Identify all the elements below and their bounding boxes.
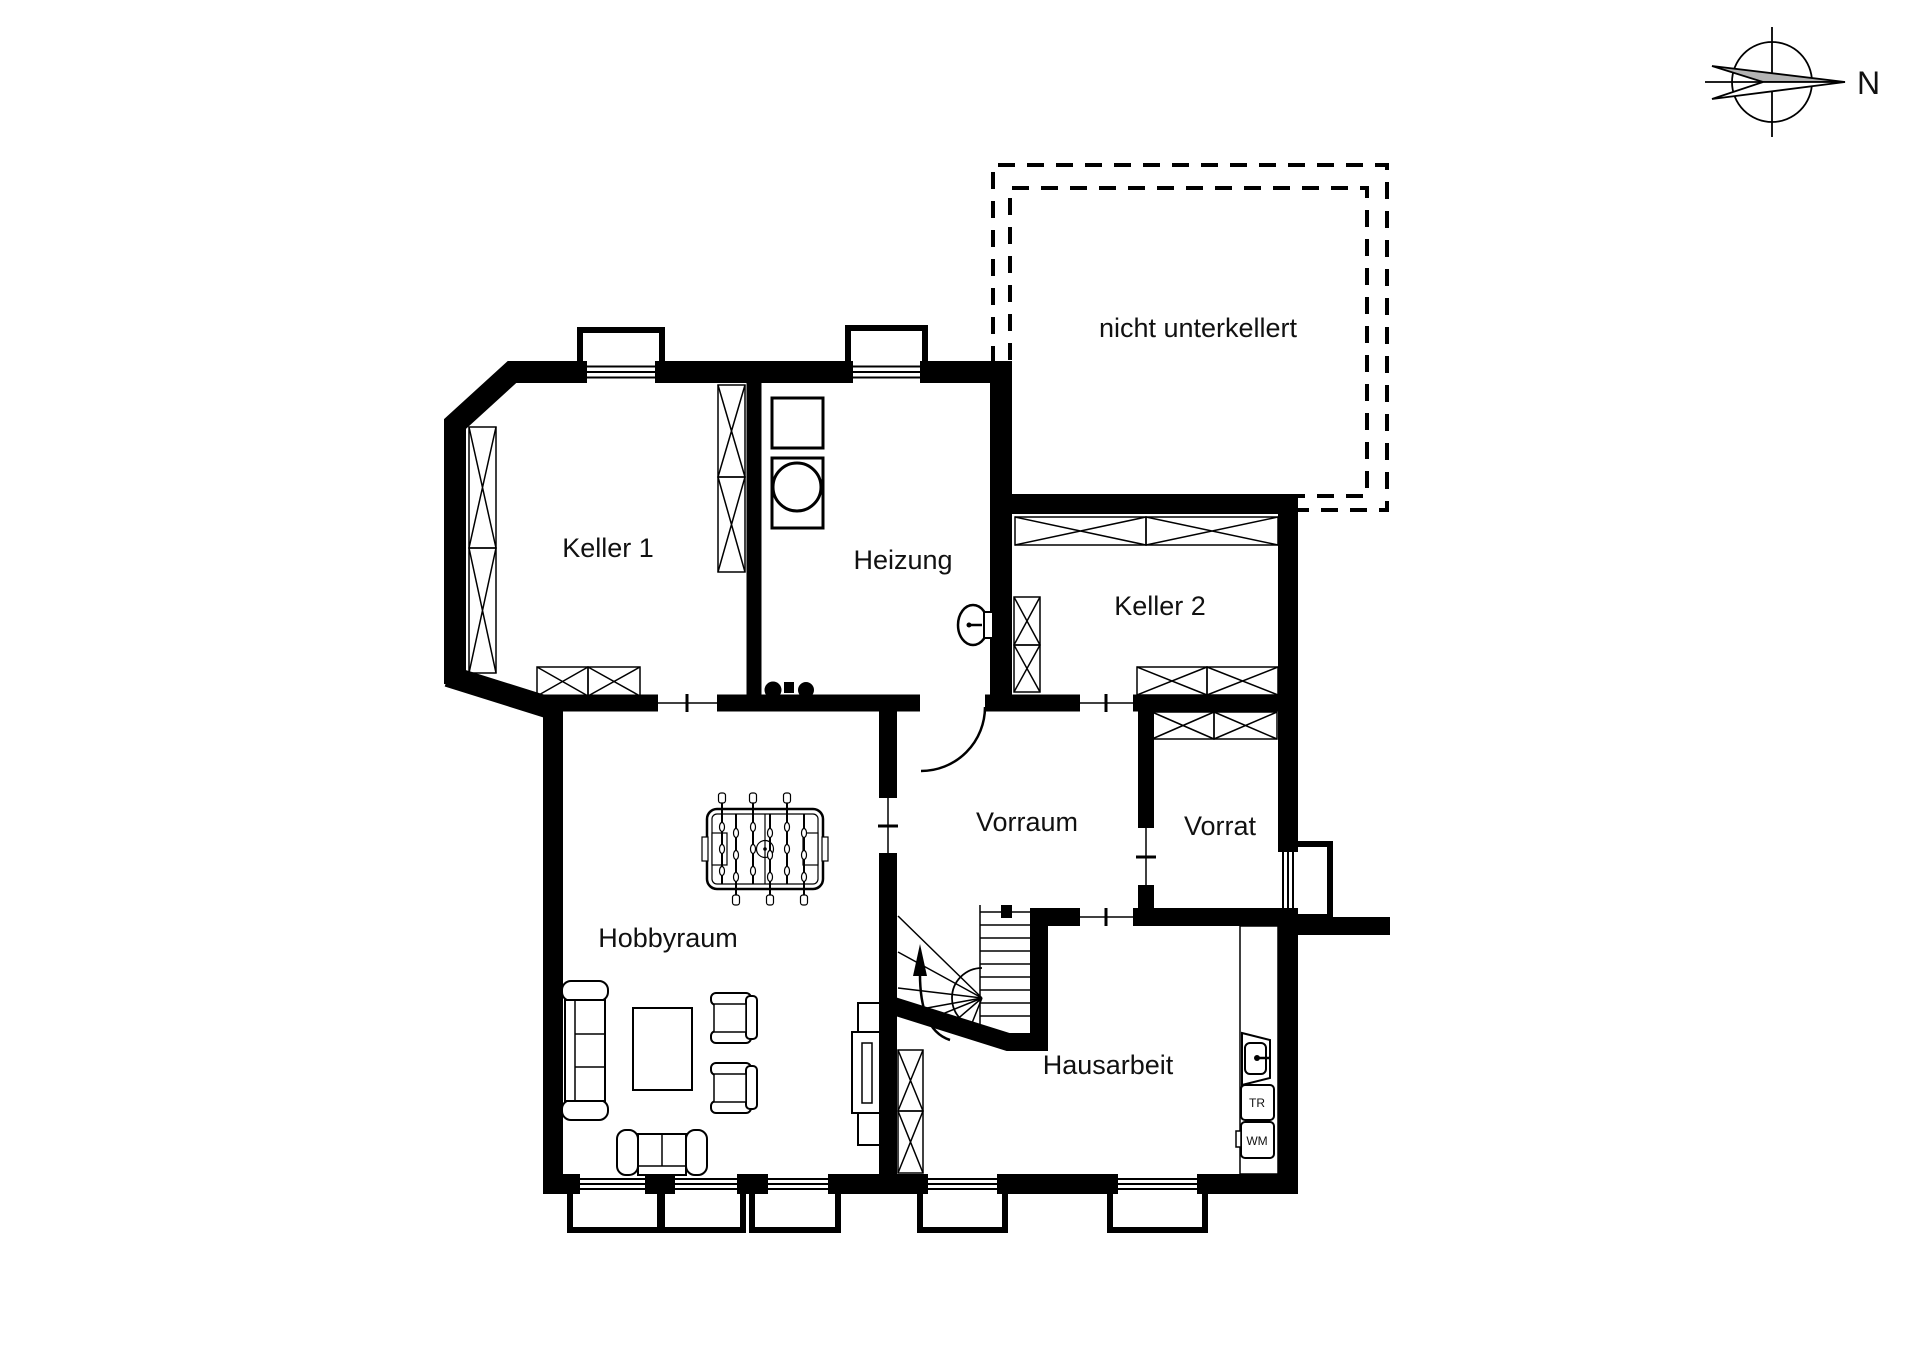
window-bottom-2 — [675, 1174, 737, 1194]
boiler-box — [772, 398, 823, 448]
well-keller1-top — [580, 330, 662, 366]
shelf-keller2-top — [1015, 517, 1278, 545]
armchair-1 — [711, 993, 757, 1043]
well-bottom-1 — [570, 1188, 660, 1230]
window-wells — [570, 328, 1330, 1230]
sink-icon — [1242, 1033, 1270, 1085]
well-bottom-3 — [752, 1188, 838, 1230]
shelf-keller1-right — [718, 385, 745, 572]
door-vorrat — [1136, 828, 1156, 885]
armchair-2 — [711, 1063, 757, 1113]
label-hobbyraum: Hobbyraum — [598, 923, 738, 953]
sideboard — [852, 1003, 880, 1145]
door-keller2 — [1080, 694, 1133, 712]
water-heater-icon — [958, 605, 993, 645]
door-hausarbeit — [1080, 908, 1133, 926]
label-nicht-unterkellert: nicht unterkellert — [1099, 313, 1298, 343]
door-keller1 — [658, 694, 717, 712]
label-dryer: TR — [1249, 1096, 1265, 1110]
door-hobbyraum — [878, 798, 898, 853]
window-bottom-4 — [928, 1174, 997, 1194]
sofa-three-seat — [562, 981, 608, 1120]
window-heizung-top — [853, 361, 920, 383]
well-bottom-2 — [662, 1188, 743, 1230]
north-label: N — [1857, 65, 1880, 101]
foosball-table — [702, 793, 828, 905]
shelf-vorrat-top — [1152, 712, 1277, 739]
sofa-two-seat — [617, 1130, 707, 1175]
shelf-keller2-bottom — [1137, 667, 1278, 695]
window-bottom-5 — [1118, 1174, 1197, 1194]
shelf-hausarbeit-left — [898, 1050, 923, 1173]
stair-post — [1001, 905, 1012, 918]
hobbyraum-furniture — [562, 793, 880, 1175]
coffee-table — [633, 1008, 692, 1090]
floor-plan-canvas: N Keller 1 Heizung Keller 2 nicht unterk… — [0, 0, 1920, 1357]
label-hausarbeit: Hausarbeit — [1043, 1050, 1174, 1080]
label-keller2: Keller 2 — [1114, 591, 1206, 621]
tank-circle — [773, 463, 821, 511]
washer-tab — [1236, 1131, 1241, 1147]
window-keller1-top — [587, 361, 655, 383]
well-bottom-4 — [920, 1188, 1005, 1230]
label-vorraum: Vorraum — [976, 807, 1078, 837]
window-bottom-3 — [768, 1174, 828, 1194]
shelf-keller1-left — [469, 427, 496, 673]
shelf-keller1-bottom — [537, 667, 640, 696]
door-heizung-swing — [921, 707, 985, 771]
compass-rose: N — [1705, 27, 1880, 137]
window-bottom-1 — [580, 1174, 645, 1194]
window-right — [1278, 852, 1298, 908]
shelf-corridor-vertical — [1014, 597, 1040, 692]
label-heizung: Heizung — [853, 545, 952, 575]
label-keller1: Keller 1 — [562, 533, 654, 563]
label-washer: WM — [1246, 1134, 1267, 1148]
label-vorrat: Vorrat — [1184, 811, 1257, 841]
well-bottom-5 — [1110, 1188, 1205, 1230]
compass-icon — [1705, 27, 1845, 137]
well-heizung-top — [848, 328, 925, 366]
